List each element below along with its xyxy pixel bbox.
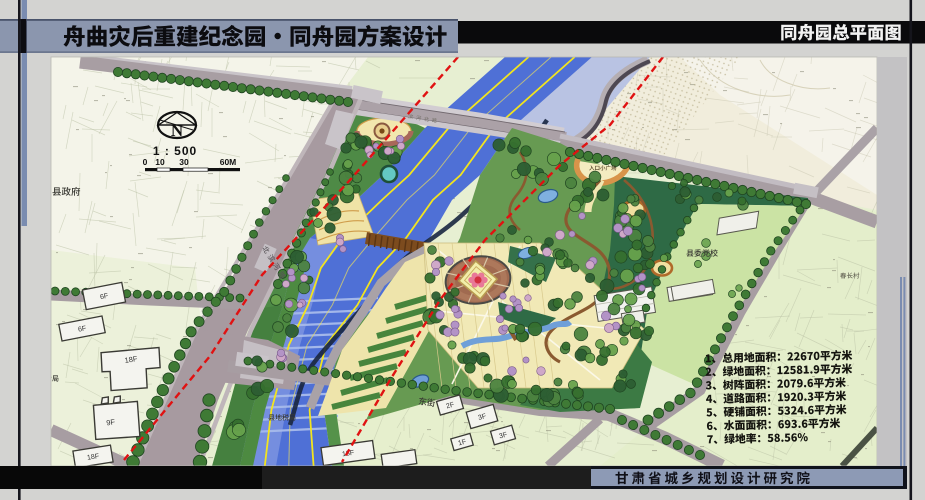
svg-text:30: 30 <box>179 157 189 167</box>
svg-text:60M: 60M <box>220 157 237 167</box>
svg-text:1 : 500: 1 : 500 <box>153 144 197 158</box>
svg-text:10: 10 <box>155 157 165 167</box>
svg-text:0: 0 <box>143 157 148 167</box>
svg-text:N: N <box>171 121 184 140</box>
